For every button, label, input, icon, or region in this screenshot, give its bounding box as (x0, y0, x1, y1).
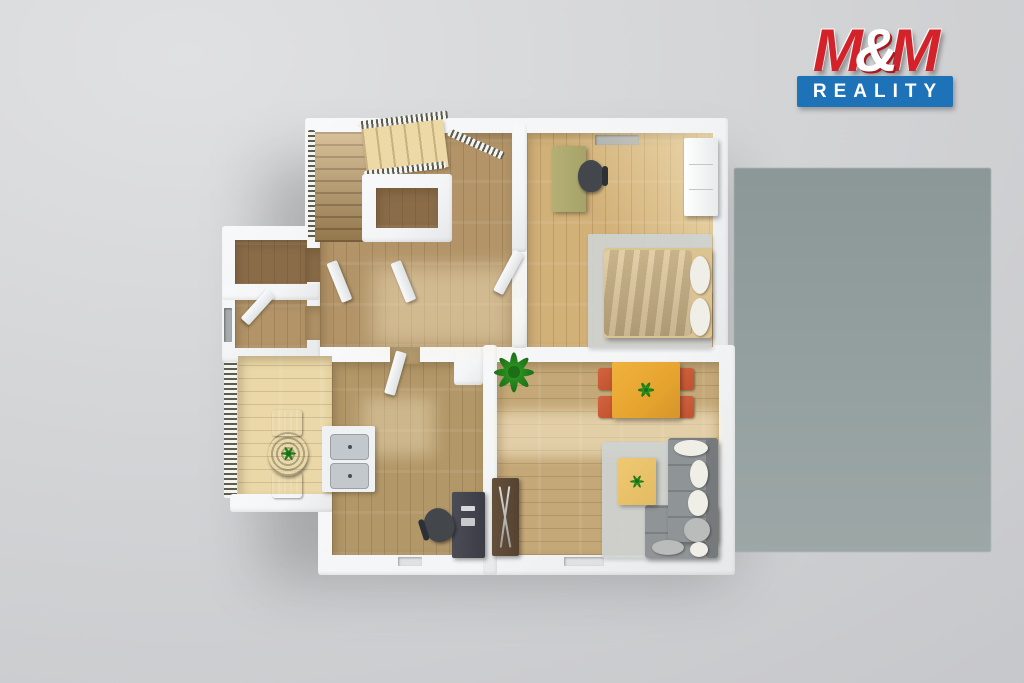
brand-logo: M&M REALITY (797, 20, 953, 107)
floorplan (222, 116, 738, 578)
bed-duvet (604, 250, 692, 336)
brand-m1: M (813, 17, 860, 84)
sink-basin-bottom (330, 463, 369, 489)
balcony-round-table (268, 432, 308, 476)
balcony-railing (224, 362, 237, 498)
living-bottom-window (564, 557, 604, 566)
bed-pillow-bottom (690, 298, 710, 336)
wall-hall-bedroom-lower (512, 298, 527, 348)
bedroom-wardrobe (684, 138, 718, 216)
stair-railing-left (308, 130, 315, 240)
sofa-pillow-4 (684, 518, 710, 542)
desk-keyboard (461, 518, 475, 526)
kitchen-corner-wall-block (454, 347, 483, 385)
wc-door-opening (305, 248, 320, 282)
kitchen-bottom-window (398, 557, 422, 566)
sofa-pillow-6 (652, 540, 684, 555)
wc-floor (235, 240, 307, 286)
dining-table (612, 362, 680, 418)
kitchen-sink-counter (322, 426, 375, 492)
brand-ampersand: & (855, 17, 895, 84)
sofa-pillow-2 (690, 460, 708, 488)
sofa-pillow-1 (674, 440, 708, 456)
sofa-pillow-5 (690, 542, 708, 557)
stair-flight-down (315, 132, 368, 242)
bedroom-office-chair (578, 160, 604, 192)
sofa-pillow-3 (688, 490, 708, 516)
dining-chair-3 (678, 368, 694, 390)
bathroom-door-opening (305, 306, 320, 340)
bedroom-window (595, 135, 639, 145)
study-desk (452, 492, 485, 558)
brand-wordmark: M&M (813, 20, 937, 82)
terrace-shaded-area (734, 168, 991, 552)
stairwell-void-floor (376, 188, 438, 228)
wall-hall-bedroom-upper (512, 124, 527, 252)
brand-m2: M (890, 17, 937, 84)
bathroom-window (224, 308, 232, 342)
desk-paper (461, 506, 475, 511)
bed-pillow-top (690, 256, 710, 294)
tv-cabinet (492, 478, 519, 556)
sink-basin-top (330, 434, 369, 460)
sofa-backrest (706, 438, 718, 558)
coffee-table (618, 458, 656, 505)
dining-chair-4 (678, 396, 694, 418)
